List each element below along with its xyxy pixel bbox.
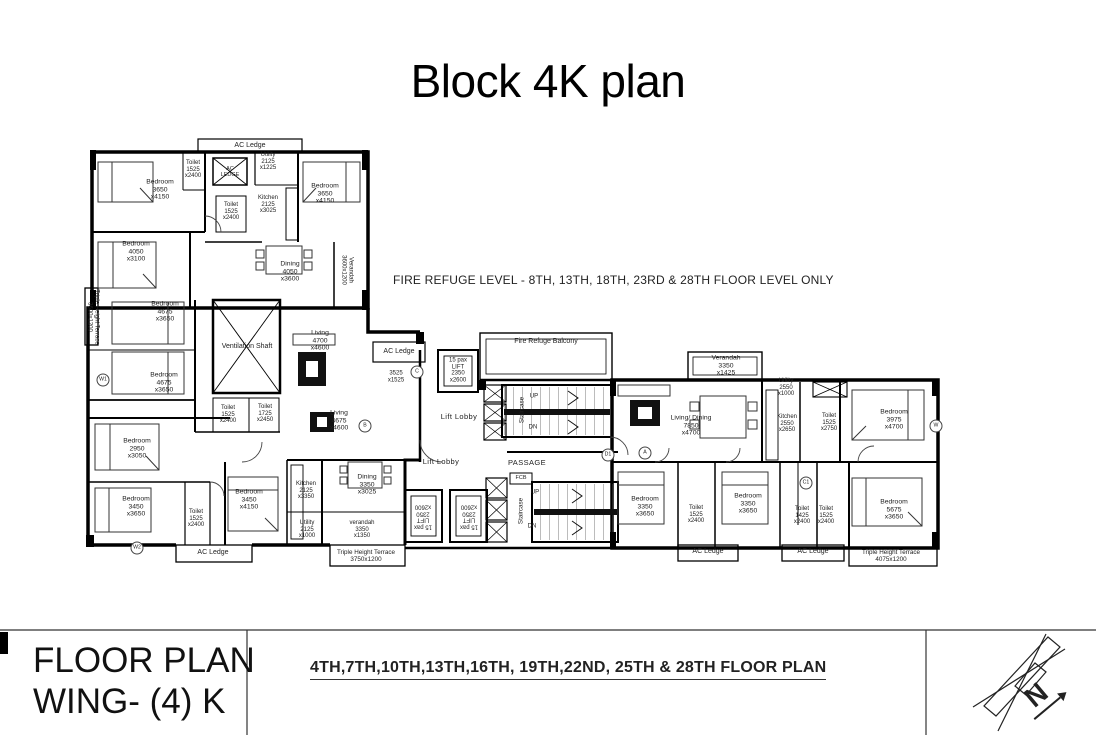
room-label: Toilet 1525 x2400	[688, 505, 704, 525]
room-label: Bedroom 3450 x4150	[235, 489, 263, 512]
fire-refuge-note: FIRE REFUGE LEVEL - 8TH, 13TH, 18TH, 23R…	[393, 273, 834, 287]
lobby-label: Lift Lobby	[441, 413, 478, 421]
room-label: Toilet 1525 x2400	[188, 509, 204, 529]
room-label: Bedroom 5675 x3650	[880, 499, 908, 522]
room-label: Toilet 1525 x2400	[818, 506, 834, 526]
wall-piers	[0, 150, 938, 654]
drawing-sheet: N Block 4K plan FIRE REFUGE LEVEL - 8TH,…	[0, 0, 1096, 735]
title-block-floors: 4TH,7TH,10TH,13TH,16TH, 19TH,22ND, 25TH …	[310, 659, 826, 680]
room-label: verandah 3350 x1350	[349, 520, 374, 540]
ac-ledge-label: AC Ledge	[197, 549, 228, 557]
page-title: Block 4K plan	[0, 54, 1096, 108]
room-label: Bedroom 4675 x3650	[151, 301, 179, 324]
ref-marker: W1	[97, 374, 110, 387]
room-label: Toilet 1525 x2400	[223, 202, 239, 222]
ref-marker: C1	[800, 477, 813, 490]
lobby-label: Lift Lobby	[423, 458, 460, 466]
dn-label: DN	[528, 524, 537, 531]
room-label: Kitchen 2125 x3350	[296, 481, 316, 501]
lift-label: 15 pax LIFT 2350 x2600	[449, 358, 467, 385]
room-label: Bedroom 4675 x3650	[150, 372, 178, 395]
room-label: Bedroom 3350 x3650	[734, 493, 762, 516]
fcb-label: FCB	[516, 475, 527, 481]
room-label: Toilet 1725 x2450	[257, 404, 273, 424]
room-label: Utility 2125 x1225	[260, 152, 276, 172]
room-label: Toilet 1525 x2400	[220, 405, 236, 425]
room-label: Dining 4050 x3600	[280, 261, 299, 284]
stair-label: Staircase	[517, 498, 524, 524]
up-label: UP	[530, 394, 538, 401]
passage-label: PASSAGE	[508, 459, 546, 467]
north-arrow-icon: N	[973, 634, 1070, 731]
shaft-label: AC LEDGE	[221, 166, 240, 178]
room-label: Kitchen 2550 x2650	[777, 414, 797, 434]
balcony-label: Fire Refuge Balcony	[514, 338, 577, 346]
walls	[85, 139, 938, 566]
ref-marker: A	[639, 447, 652, 460]
room-label: Utility 2550 x1000	[778, 378, 794, 398]
title-block-project: FLOOR PLAN WING- (4) K	[33, 640, 255, 722]
room-label: Living 4675 x4600	[330, 410, 349, 433]
room-label: Bedroom 4050 x3100	[122, 241, 150, 264]
title-block-line1: FLOOR PLAN	[33, 640, 255, 681]
ref-marker: B	[359, 420, 372, 433]
ref-marker: W	[930, 420, 943, 433]
terrace-label: Triple Height Terrace 3600x1200	[86, 289, 99, 344]
room-label: Verandah 3600x1200	[340, 255, 353, 285]
lift-label: 15 pax LIFT 2350 x2600	[414, 503, 432, 530]
ref-marker: W2	[131, 542, 144, 555]
room-label: Bedroom 3975 x4700	[880, 409, 908, 432]
room-label: Toilet 1425 x2400	[794, 506, 810, 526]
ac-ledge-label: AC Ledge	[383, 348, 414, 356]
dimension-label: 3525 x1525	[388, 370, 404, 383]
room-label: Utility 2125 x1000	[299, 520, 315, 540]
ref-marker: D1	[602, 449, 615, 462]
room-label: Bedroom 3650 x4150	[311, 183, 339, 206]
room-label: Bedroom 3650 x4150	[146, 179, 174, 202]
ac-ledge-label: AC Ledge	[797, 548, 828, 556]
room-label: Verandah 3350 x1425	[711, 355, 740, 378]
ac-ledge-label: AC Ledge	[692, 548, 723, 556]
terrace-label: Triple Height Terrace 3750x1200	[337, 549, 395, 563]
room-label: Kitchen 2125 x3025	[258, 195, 278, 215]
ac-ledge-label: AC Ledge	[234, 142, 265, 150]
shaft-label: Ventilation Shaft	[222, 343, 273, 351]
room-label: Living 4700 x4600	[311, 330, 330, 353]
up-label: UP	[531, 490, 539, 497]
lift-label: 15 pax LIFT 2350 x2600	[460, 503, 478, 530]
stair-label: Staircase	[518, 397, 525, 423]
room-label: Toilet 1525 x2400	[185, 160, 201, 180]
dn-label: DN	[529, 425, 538, 432]
room-label: Dining 3350 x3025	[357, 474, 376, 497]
floor-plan-drawing: N	[0, 0, 1096, 735]
terrace-label: Triple Height Terrace 4075x1200	[862, 549, 920, 563]
title-block-line2: WING- (4) K	[33, 681, 255, 722]
room-label: Bedroom 3450 x3650	[122, 496, 150, 519]
room-label: Living/ Dining 7850 x4700	[671, 415, 712, 438]
ref-marker: C	[411, 366, 424, 379]
room-label: Toilet 1525 x2750	[821, 413, 837, 433]
room-label: Bedroom 2950 x3050	[123, 438, 151, 461]
room-label: Bedroom 3350 x3650	[631, 496, 659, 519]
